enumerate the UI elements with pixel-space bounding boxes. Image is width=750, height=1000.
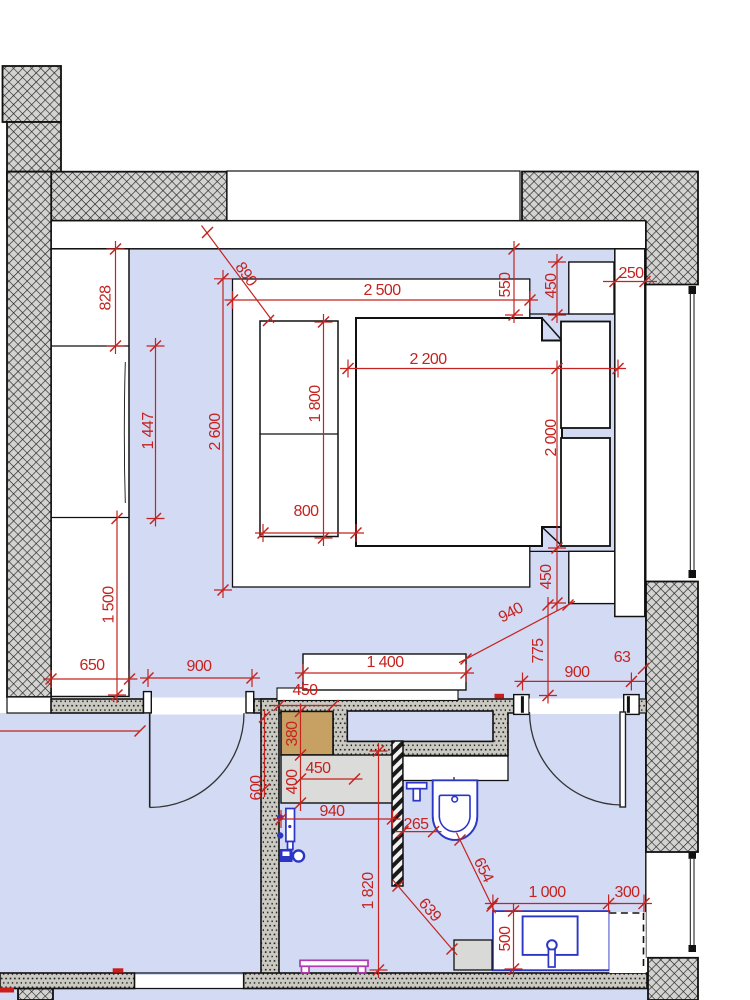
- svg-text:2 500: 2 500: [363, 282, 401, 299]
- svg-text:380: 380: [284, 721, 301, 747]
- svg-text:1 000: 1 000: [528, 884, 566, 901]
- svg-text:450: 450: [293, 682, 319, 699]
- svg-text:775: 775: [530, 638, 547, 664]
- svg-text:1 800: 1 800: [307, 385, 324, 423]
- svg-text:1 400: 1 400: [366, 654, 404, 671]
- svg-text:63: 63: [614, 649, 631, 666]
- svg-text:800: 800: [294, 503, 320, 520]
- svg-text:450: 450: [543, 273, 560, 299]
- svg-text:650: 650: [80, 657, 106, 674]
- svg-text:1 447: 1 447: [140, 412, 157, 450]
- svg-text:2 000: 2 000: [543, 419, 560, 457]
- svg-text:900: 900: [187, 658, 213, 675]
- svg-text:265: 265: [404, 816, 430, 833]
- svg-text:450: 450: [538, 564, 555, 590]
- svg-text:1 820: 1 820: [360, 872, 377, 910]
- svg-text:300: 300: [615, 884, 641, 901]
- svg-text:2 200: 2 200: [409, 351, 447, 368]
- svg-text:600: 600: [248, 775, 265, 801]
- svg-text:500: 500: [497, 926, 514, 952]
- svg-text:828: 828: [98, 285, 115, 311]
- svg-text:900: 900: [565, 664, 591, 681]
- svg-text:400: 400: [284, 769, 301, 795]
- svg-text:2 600: 2 600: [207, 413, 224, 451]
- svg-text:1 500: 1 500: [101, 586, 118, 624]
- svg-text:940: 940: [320, 803, 346, 820]
- svg-text:250: 250: [619, 265, 645, 282]
- svg-text:550: 550: [497, 272, 514, 298]
- svg-text:450: 450: [306, 760, 332, 777]
